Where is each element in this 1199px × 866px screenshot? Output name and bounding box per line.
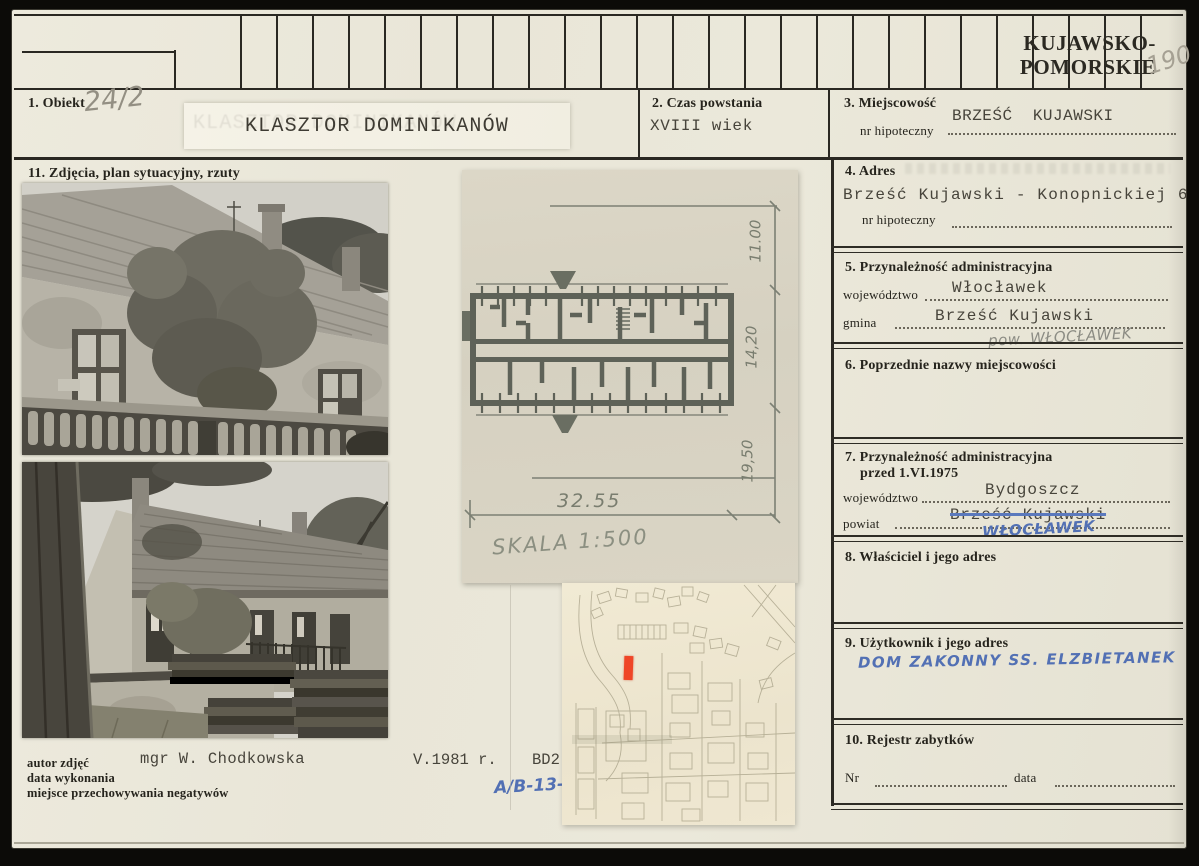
situation-map-drawing — [562, 583, 795, 825]
field4-ghost-smudge — [905, 163, 1170, 174]
field4-sublabel: nr hipoteczny — [862, 212, 936, 228]
field5-woj-dotted — [925, 299, 1168, 301]
field7-woj-value: Bydgoszcz — [985, 481, 1080, 499]
scanned-card: KUJAWSKO-POMORSKIE 190 1. Obiekt 24/2 KL… — [0, 0, 1199, 866]
footer-date: V.1981 r. — [413, 751, 497, 769]
map-location-marker — [624, 656, 634, 680]
plan-dim-14-20: 14,20 — [742, 326, 760, 369]
photo-rear-illustration — [22, 462, 388, 738]
field4-value: Brześć Kujawski - Konopnickiej 6 — [843, 186, 1189, 204]
title-label-strip: KLASZTOR DOMINIKANÓW KLASZTOR DOMINIKANÓ… — [184, 103, 570, 149]
footer-label-date: data wykonania — [27, 771, 115, 786]
field7-label2: przed 1.VI.1975 — [860, 466, 958, 482]
photo-facade-illustration — [22, 183, 388, 455]
blank-writing-line — [22, 51, 174, 53]
field3-label: 3. Miejscowość — [844, 96, 936, 112]
footer-code: BD2 — [532, 751, 560, 769]
divider-6-7 — [831, 437, 1183, 444]
plan-dim-19-50: 19,50 — [738, 440, 756, 483]
footer-label-author: autor zdjęć — [27, 756, 89, 771]
region-stamp: KUJAWSKO-POMORSKIE — [960, 31, 1156, 79]
field5-label: 5. Przynależność administracyjna — [845, 260, 1052, 276]
field3-dotted-line — [948, 133, 1176, 135]
field8-label: 8. Właściciel i jego adres — [845, 550, 996, 566]
divider-8-9 — [831, 622, 1183, 629]
field3-value: BRZEŚĆ KUJAWSKI — [952, 107, 1114, 125]
field10-nr-label: Nr — [845, 770, 859, 786]
divider-5-6 — [831, 342, 1183, 349]
row1-divider-2 — [828, 88, 830, 157]
divider-4-5 — [831, 246, 1183, 253]
field2-value: XVIII wiek — [650, 117, 753, 135]
field5-gmina-label: gmina — [843, 315, 877, 331]
photo-building-facade — [22, 183, 388, 455]
field10-nr-dotted — [875, 785, 1007, 787]
field3-sublabel: nr hipoteczny — [860, 123, 934, 139]
footer-ref-main: A/B-13 — [494, 775, 558, 798]
divider-9-10 — [831, 718, 1183, 725]
band-bottom-line — [14, 88, 1183, 90]
footer-label-negatives: miejsce przechowywania negatywów — [27, 786, 229, 801]
field6-label: 6. Poprzednie nazwy miejscowości — [845, 358, 1056, 374]
plan-dim-11: 11.00 — [746, 220, 764, 263]
main-column-divider — [831, 157, 834, 806]
field9-label: 9. Użytkownik i jego adres — [845, 636, 1008, 652]
card-bottom-edge — [14, 842, 1184, 844]
field7-woj-dotted — [922, 501, 1170, 503]
photo-building-rear — [22, 462, 388, 738]
field5-woj-label: województwo — [843, 287, 918, 303]
field4-dotted-line — [952, 226, 1172, 228]
row1-bottom-line — [14, 157, 1183, 160]
field10-data-label: data — [1014, 770, 1036, 786]
band-short-tick — [174, 50, 176, 88]
plan-dim-width: 32.55 — [557, 490, 621, 512]
floor-plan-patch: 11.00 14,20 19,50 32.55 SKALA 1:500 — [462, 170, 798, 583]
field11-label: 11. Zdjęcia, plan sytuacyjny, rzuty — [28, 166, 240, 182]
field10-data-dotted — [1055, 785, 1175, 787]
field1-label: 1. Obiekt — [28, 96, 85, 112]
field2-label: 2. Czas powstania — [652, 96, 762, 112]
field4-label: 4. Adres — [845, 164, 895, 180]
field5-woj-value: Włocławek — [952, 279, 1047, 297]
field7-label: 7. Przynależność administracyjna — [845, 450, 1052, 466]
tile-stack-on-wall — [168, 654, 296, 684]
field7-powiat-label: powiat — [843, 516, 880, 532]
field10-label: 10. Rejestr zabytków — [845, 733, 974, 749]
situation-map-patch — [562, 583, 795, 825]
row1-divider-1 — [638, 88, 640, 157]
paper-crease — [510, 585, 511, 810]
field10-bottom-line — [831, 803, 1183, 810]
footer-author: mgr W. Chodkowska — [140, 750, 305, 768]
field5-gmina-value: Brześć Kujawski — [935, 307, 1094, 325]
field7-woj-label: województwo — [843, 490, 918, 506]
divider-7-8 — [831, 535, 1183, 542]
object-title: KLASZTOR DOMINIKANÓW — [184, 115, 570, 138]
